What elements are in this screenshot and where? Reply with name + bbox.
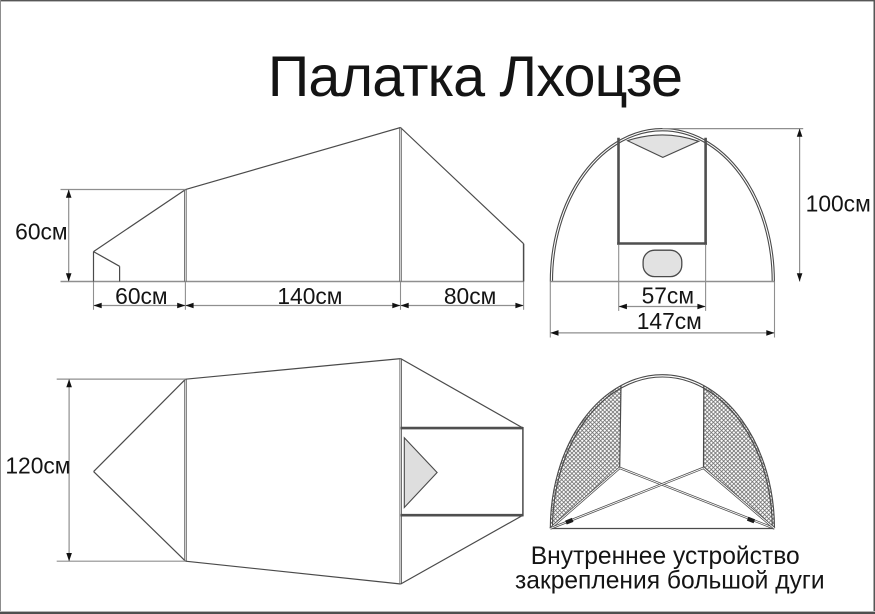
svg-text:100см: 100см (806, 191, 871, 217)
svg-text:57см: 57см (642, 283, 694, 309)
svg-text:Внутреннее устройство: Внутреннее устройство (531, 543, 800, 570)
svg-text:60см: 60см (15, 219, 67, 245)
svg-text:60см: 60см (115, 283, 167, 309)
svg-text:147см: 147см (637, 308, 702, 334)
svg-text:140см: 140см (277, 283, 342, 309)
svg-text:закрепления большой дуги: закрепления большой дуги (515, 568, 825, 595)
svg-text:120см: 120см (5, 453, 70, 479)
svg-text:Палатка Лхоцзе: Палатка Лхоцзе (268, 45, 682, 109)
svg-text:80см: 80см (444, 283, 496, 309)
